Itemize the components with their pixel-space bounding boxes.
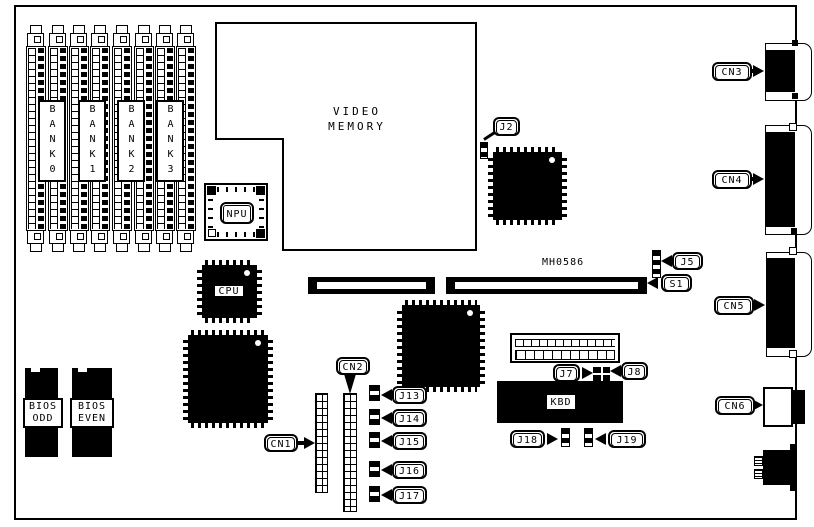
callout-cn2: CN2 (336, 357, 370, 375)
jumper-j2 (480, 142, 488, 159)
motherboard-diagram: BANK0 BANK1 BANK2 BANK3 VIDEO MEMORY NPU… (0, 0, 814, 527)
callout-j18: J18 (510, 430, 545, 448)
bank1-label: BANK1 (78, 100, 106, 182)
cn1-header (315, 393, 328, 493)
power-pins-bottom (754, 469, 763, 479)
cn5-screw-top (789, 247, 797, 255)
power-connector (763, 450, 790, 485)
cpu-label: CPU (213, 284, 245, 298)
power-connector-edge (790, 444, 797, 491)
cn4-connector (765, 132, 795, 227)
power-pins-top (754, 456, 763, 466)
kbd-label: KBD (546, 394, 576, 410)
bank0-label: BANK0 (38, 100, 66, 182)
pin1-dot (244, 270, 250, 276)
video-memory-region (282, 22, 477, 251)
pointer-arrow-s1 (647, 277, 658, 289)
callout-j14: J14 (392, 409, 427, 427)
jumper-j16 (369, 461, 380, 477)
pointer-arrow-j8 (610, 365, 621, 377)
bios-odd-label: BIOSODD (23, 398, 63, 428)
callout-cn6: CN6 (715, 396, 755, 415)
callout-j16: J16 (392, 461, 427, 479)
cn6-connector (763, 387, 793, 427)
pin1-dot (549, 157, 555, 163)
callout-j7: J7 (553, 364, 580, 382)
callout-j8: J8 (621, 362, 648, 380)
expansion-slot-1 (308, 277, 435, 294)
jumper-j5 (652, 250, 661, 278)
cn5-screw-bottom (789, 350, 797, 358)
jumper-j18 (561, 428, 570, 447)
callout-j5: J5 (672, 252, 703, 270)
callout-j13: J13 (392, 386, 427, 404)
jumper-j17 (369, 486, 380, 502)
pin1-dot (467, 310, 473, 316)
dip-connector (510, 333, 620, 363)
pointer-arrow-j18 (547, 433, 558, 445)
callout-j15: J15 (392, 432, 427, 450)
cn6-edge-strip (793, 390, 805, 424)
board-id-text: MH0586 (542, 257, 584, 268)
callout-cn3: CN3 (712, 62, 752, 81)
cn5-connector (766, 258, 795, 348)
pointer-arrow-j16 (381, 464, 392, 476)
npu-socket: NPU (204, 183, 268, 241)
bank3-label: BANK3 (156, 100, 184, 182)
callout-cn5: CN5 (714, 296, 754, 315)
pin1-dot (255, 340, 261, 346)
cpu-chip: CPU (202, 265, 257, 318)
callout-s1: S1 (661, 274, 692, 292)
cn3-screw-bottom (792, 93, 798, 99)
video-controller-chip (493, 152, 562, 220)
jumper-j19 (584, 428, 593, 447)
chipset-chip (402, 305, 480, 387)
j7-j8-jumper-block (593, 367, 610, 382)
expansion-slot-2 (446, 277, 647, 294)
npu-label: NPU (220, 202, 254, 224)
pointer-arrow-j14 (381, 412, 392, 424)
callout-cn4: CN4 (712, 170, 752, 189)
cn4-screw-bottom (791, 228, 797, 234)
cn3-connector (765, 50, 795, 92)
callout-j17: J17 (392, 486, 427, 504)
callout-cn1: CN1 (264, 434, 298, 452)
jumper-j14 (369, 409, 380, 425)
asic-chip (188, 335, 268, 423)
pointer-arrow-j5 (661, 255, 672, 267)
callout-j2: J2 (493, 117, 520, 136)
bios-even-label: BIOSEVEN (70, 398, 114, 428)
video-memory-region-left (215, 22, 284, 140)
pointer-arrow-j15 (381, 435, 392, 447)
cn2-header (343, 393, 357, 512)
cn4-screw-top (789, 123, 797, 131)
kbd-controller-chip: KBD (497, 381, 623, 423)
jumper-j15 (369, 432, 380, 448)
jumper-j13 (369, 385, 380, 401)
video-memory-label: VIDEO MEMORY (287, 104, 427, 134)
pin1-marker (208, 229, 216, 237)
pointer-arrow-cn2 (344, 374, 356, 394)
pointer-arrow-j7 (582, 367, 593, 379)
pointer-arrow-j17 (381, 489, 392, 501)
pointer-arrow-j13 (381, 389, 392, 401)
bank2-label: BANK2 (117, 100, 145, 182)
pointer-arrow-j19 (595, 433, 606, 445)
cn3-screw-top (792, 40, 798, 46)
callout-j19: J19 (608, 430, 646, 448)
